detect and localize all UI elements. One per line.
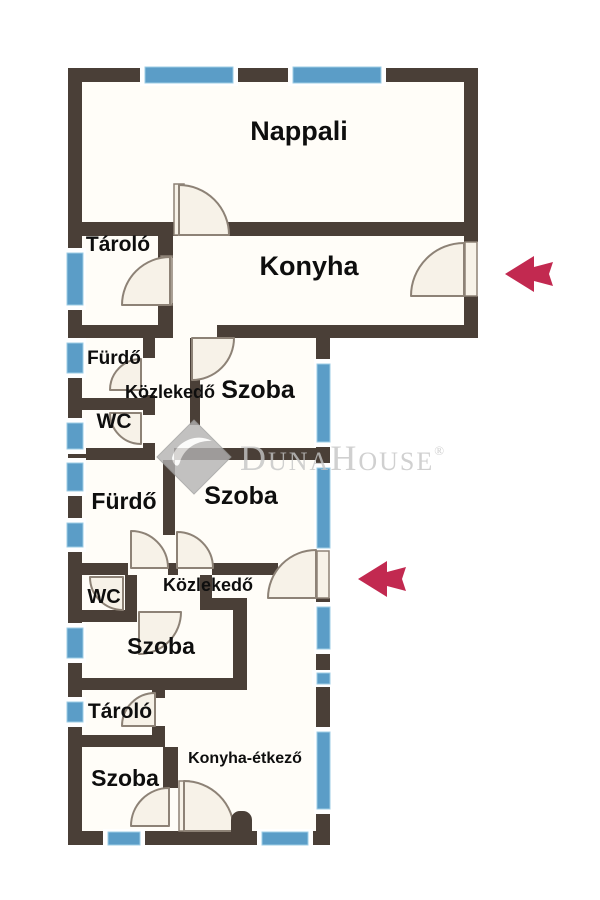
watermark-part: UNA — [268, 447, 330, 476]
room-label-szoba-2: Szoba — [204, 482, 279, 510]
wall-segment — [68, 678, 247, 690]
floor-plan-canvas: Nappali Tároló Konyha Fürdő Közlekedő Sz… — [0, 0, 600, 900]
wall-segment — [212, 563, 278, 575]
wall-segment — [217, 325, 478, 338]
window — [293, 67, 381, 83]
entrance-arrow-icon — [358, 561, 406, 597]
wall-segment — [163, 747, 178, 788]
watermark-part: D — [240, 438, 268, 478]
room-label-wc-lower: WC — [87, 586, 120, 608]
room-label-furdo-upper: Fürdő — [87, 348, 141, 369]
window — [262, 832, 308, 845]
wall-segment — [316, 684, 330, 732]
room-label-konyha-etkezo: Konyha-étkező — [188, 750, 302, 767]
window — [67, 628, 83, 658]
window — [145, 67, 233, 83]
wall-segment — [68, 735, 165, 747]
door-leaf — [465, 242, 477, 296]
wall-segment — [143, 338, 155, 358]
watermark-part: H — [330, 438, 358, 478]
window — [67, 253, 83, 305]
room-label-kozlekedo-lower: Közlekedő — [163, 575, 253, 595]
wall-segment — [316, 809, 330, 845]
window — [317, 673, 330, 684]
room-label-furdo-lower: Fürdő — [91, 488, 156, 514]
entrance-arrow-icon — [505, 256, 553, 292]
room-label-tarolo-lower: Tároló — [88, 700, 152, 723]
wall-segment — [228, 222, 464, 236]
room-label-szoba-4: Szoba — [91, 765, 159, 791]
room-label-szoba-1: Szoba — [221, 376, 296, 404]
wall-segment — [68, 610, 137, 622]
window — [67, 423, 83, 449]
door-leaf — [317, 551, 329, 598]
window — [317, 607, 330, 649]
window — [317, 468, 330, 548]
wall-segment — [158, 236, 173, 258]
wall-segment — [158, 303, 173, 338]
watermark-part: OUSE — [358, 447, 434, 476]
window — [108, 832, 140, 845]
window — [67, 702, 83, 722]
room-label-konyha: Konyha — [259, 251, 359, 281]
wall-segment — [68, 68, 478, 82]
chimney-block — [231, 811, 252, 843]
floorplan-image: Nappali Tároló Konyha Fürdő Közlekedő Sz… — [0, 0, 600, 900]
room-label-nappali: Nappali — [250, 116, 348, 146]
room-label-szoba-3: Szoba — [127, 633, 195, 659]
wall-segment — [82, 563, 128, 575]
room-label-wc-upper: WC — [97, 410, 132, 433]
window — [67, 463, 83, 491]
window — [317, 732, 330, 809]
window — [67, 343, 83, 373]
window — [317, 364, 330, 442]
wall-segment — [464, 68, 478, 242]
wall-segment — [212, 598, 247, 610]
window — [67, 523, 83, 547]
room-label-tarolo-upper: Tároló — [86, 233, 150, 256]
room-label-kozlekedo-upper: Közlekedő — [125, 382, 215, 402]
wall-segment — [68, 325, 160, 338]
watermark-registered: ® — [434, 443, 446, 458]
